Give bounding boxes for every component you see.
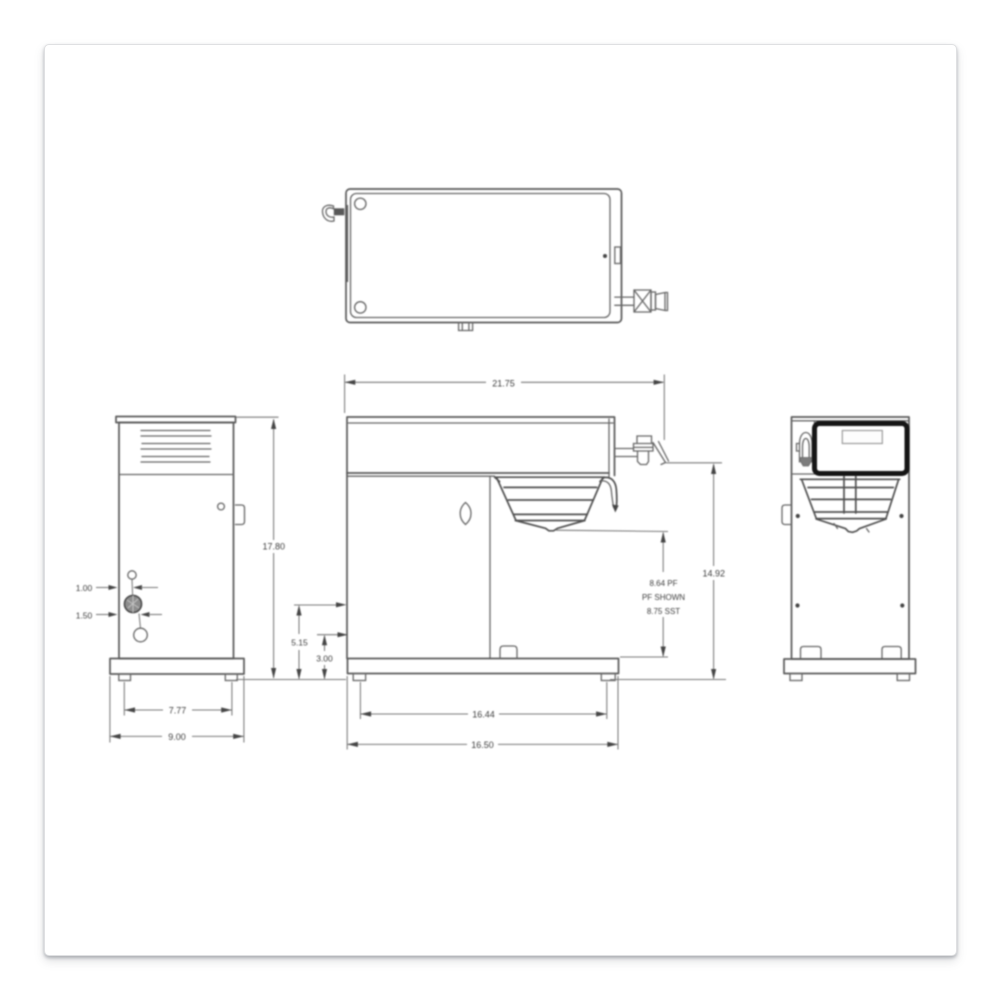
svg-text:16.44: 16.44 [472, 710, 495, 720]
svg-text:1.50: 1.50 [76, 611, 93, 621]
svg-text:21.75: 21.75 [492, 378, 515, 388]
svg-text:3.00: 3.00 [316, 654, 333, 664]
svg-text:1.00: 1.00 [76, 583, 93, 593]
svg-text:8.75 SST: 8.75 SST [647, 607, 680, 616]
svg-text:17.80: 17.80 [263, 542, 286, 552]
svg-text:9.00: 9.00 [168, 732, 186, 742]
svg-text:8.64 PF: 8.64 PF [649, 579, 677, 588]
svg-text:7.77: 7.77 [169, 706, 187, 716]
svg-text:5.15: 5.15 [291, 638, 308, 648]
svg-text:PF SHOWN: PF SHOWN [642, 593, 685, 602]
svg-text:16.50: 16.50 [471, 740, 494, 750]
svg-text:14.92: 14.92 [703, 569, 726, 579]
